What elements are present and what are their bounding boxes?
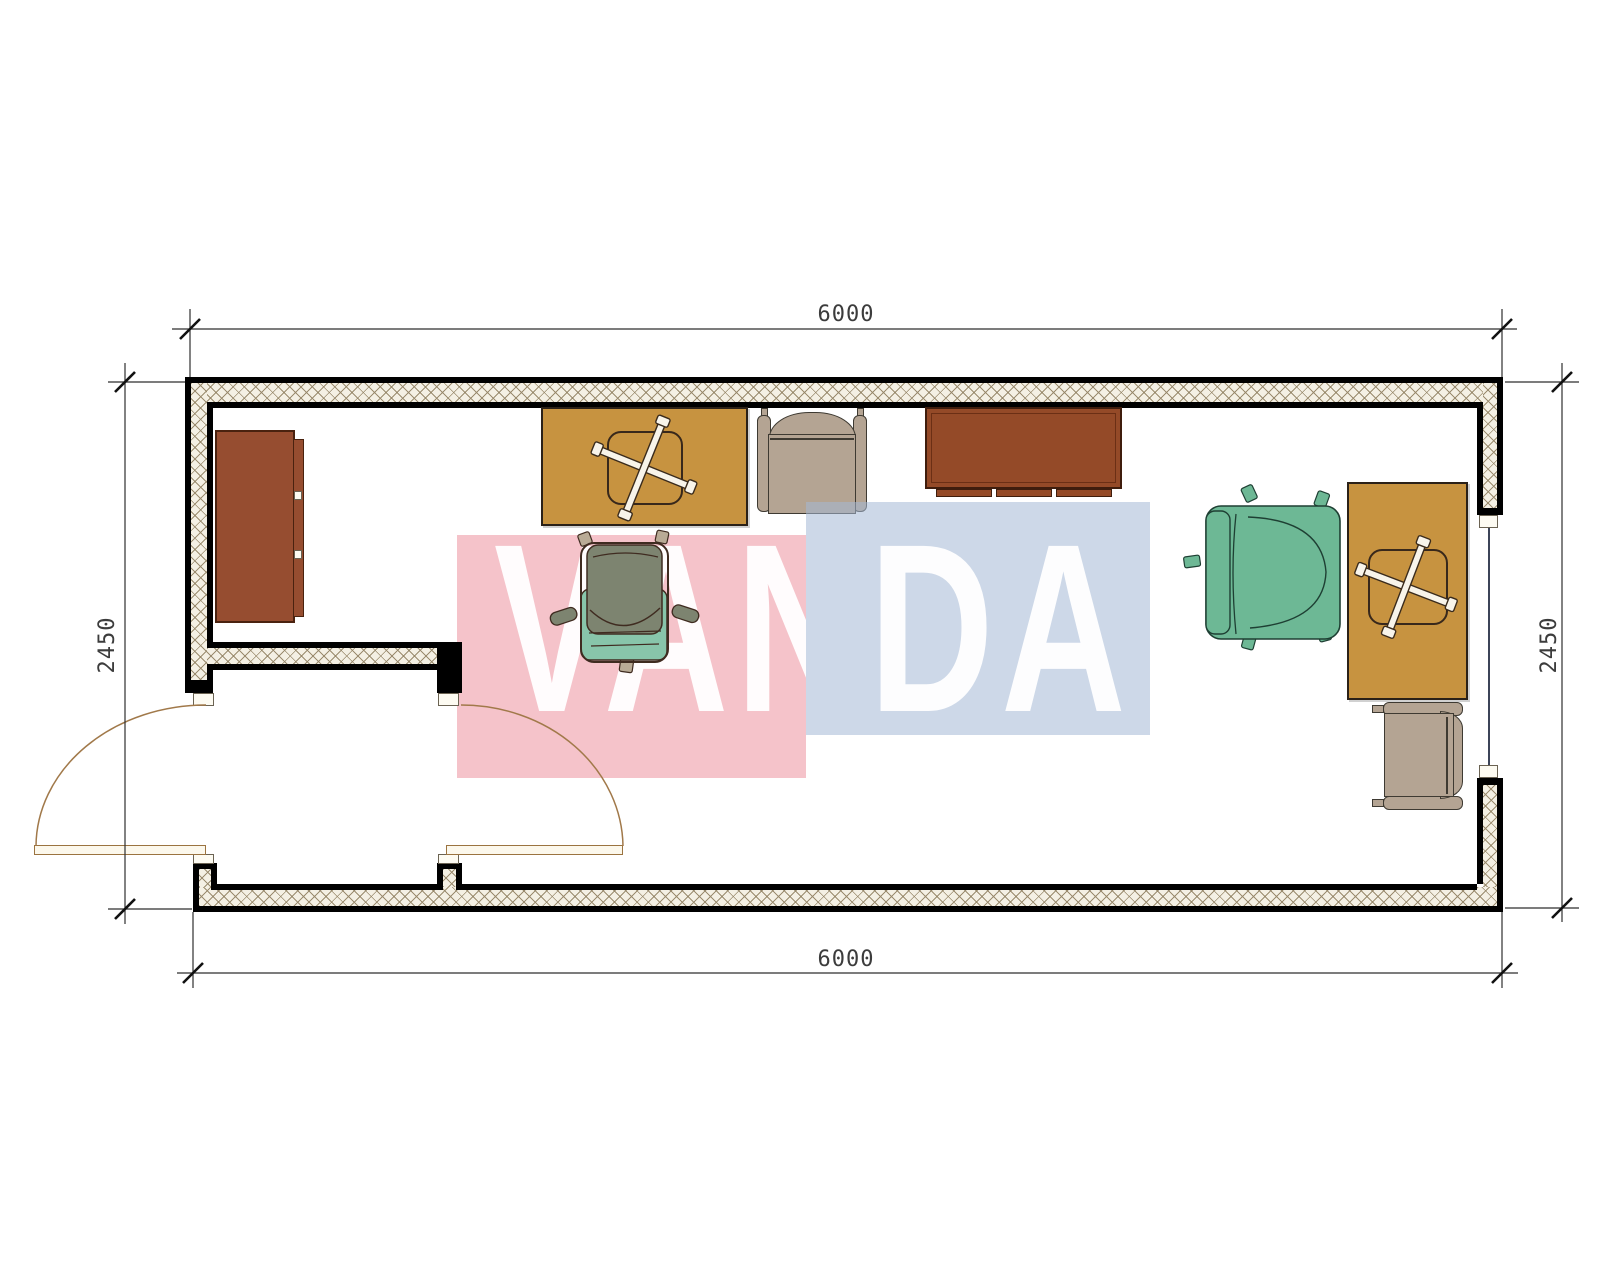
dimension-label-bottom: 6000: [786, 947, 906, 972]
door-leaf-right: [446, 845, 623, 855]
watermark-text-right: DA: [869, 508, 1133, 748]
door-stub-left-side-b: [211, 863, 217, 890]
door-jamb-bottom-left: [193, 854, 214, 864]
wall-left-hatch: [191, 383, 207, 682]
armchair-top-seam: [770, 438, 854, 440]
wall-right-upper-inner: [1477, 402, 1483, 508]
wall-right-lower-inner: [1477, 785, 1483, 884]
partition-end-cap: [437, 642, 462, 693]
partition-bottom-line: [207, 664, 438, 670]
sideboard-top-inner-line: [931, 413, 1116, 483]
door-stub-right-side-b: [456, 863, 462, 890]
dimension-label-right: 2450: [1537, 585, 1561, 705]
cabinet-handle-bottom: [294, 550, 302, 559]
cabinet-left: [215, 430, 295, 623]
door-jamb-top-right: [438, 693, 459, 706]
door-stub-right-hatch: [443, 869, 456, 887]
armchair-right-arm-bottom: [1383, 796, 1463, 810]
sideboard-top: [925, 407, 1122, 489]
window-jamb-bottom: [1479, 765, 1498, 778]
wall-top-inner-line: [207, 402, 1483, 408]
wall-right-upper-outer: [1497, 377, 1503, 515]
dimension-label-top: 6000: [786, 302, 906, 327]
task-chair-right: [1183, 484, 1340, 650]
desk-right-chair-seat-outline: [1368, 549, 1448, 625]
window-jamb-top: [1479, 515, 1498, 528]
window-line: [1488, 528, 1490, 765]
wall-top-hatch: [191, 383, 1497, 402]
wall-right-upper-cap: [1477, 508, 1503, 515]
door-jamb-bottom-right: [438, 854, 459, 864]
cabinet-handle-top: [294, 491, 302, 500]
wall-right-upper-hatch: [1483, 383, 1497, 510]
armchair-right-seat: [1384, 713, 1454, 797]
door-leaf-left: [34, 845, 206, 855]
wall-right-lower-cap: [1477, 778, 1503, 785]
desk-left-chair-seat-outline: [607, 431, 683, 505]
dimension-label-left: 2450: [95, 585, 119, 705]
armchair-right-seam: [1446, 717, 1448, 794]
wall-bottom-inner-right: [462, 884, 1477, 890]
wall-left-end-cap: [185, 680, 213, 693]
partition-hatch: [207, 648, 438, 664]
door-stub-left-hatch: [199, 869, 211, 887]
wall-left-inner-line: [207, 402, 213, 680]
wall-bottom-inner-mid: [217, 884, 438, 890]
cabinet-left-door: [293, 439, 304, 617]
door-jamb-top-left: [193, 693, 214, 706]
wall-right-lower-outer: [1497, 785, 1503, 912]
wall-bottom-outer-line: [193, 906, 1503, 912]
floor-plan-canvas: VAN DA: [0, 0, 1600, 1280]
